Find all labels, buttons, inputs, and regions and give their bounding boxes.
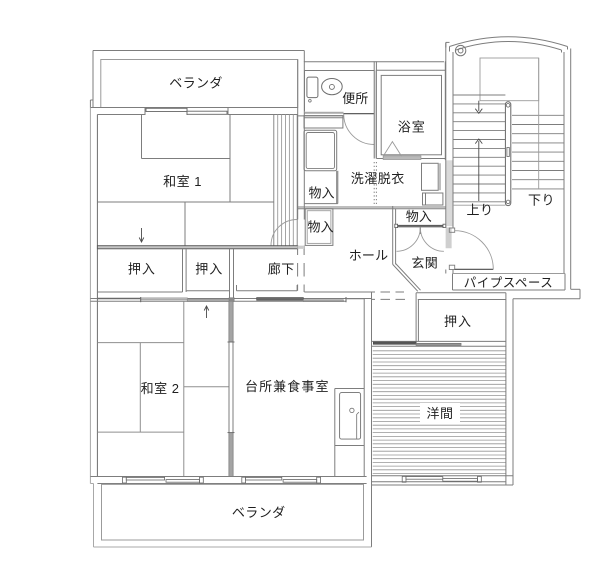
svg-text:和室 1: 和室 1 [163, 174, 202, 189]
svg-text:玄関: 玄関 [411, 255, 438, 270]
svg-text:廊下: 廊下 [268, 262, 295, 277]
svg-text:押入: 押入 [195, 262, 223, 277]
svg-text:物入: 物入 [406, 209, 432, 224]
svg-text:上り: 上り [466, 203, 493, 218]
svg-text:物入: 物入 [308, 185, 334, 200]
svg-text:押入: 押入 [128, 262, 156, 277]
svg-text:ホール: ホール [349, 248, 389, 263]
svg-text:浴室: 浴室 [398, 120, 426, 135]
svg-text:押入: 押入 [444, 314, 472, 329]
svg-text:下り: 下り [528, 193, 555, 208]
svg-text:ベランダ: ベランダ [169, 76, 223, 91]
svg-text:洗濯脱衣: 洗濯脱衣 [351, 171, 405, 186]
svg-text:パイプスペース: パイプスペース [464, 276, 554, 290]
svg-text:台所兼食事室: 台所兼食事室 [245, 379, 330, 394]
svg-text:ベランダ: ベランダ [232, 505, 286, 520]
svg-text:物入: 物入 [307, 220, 333, 235]
svg-text:便所: 便所 [342, 91, 368, 106]
svg-text:洋間: 洋間 [426, 406, 453, 421]
svg-text:和室 2: 和室 2 [141, 381, 180, 396]
